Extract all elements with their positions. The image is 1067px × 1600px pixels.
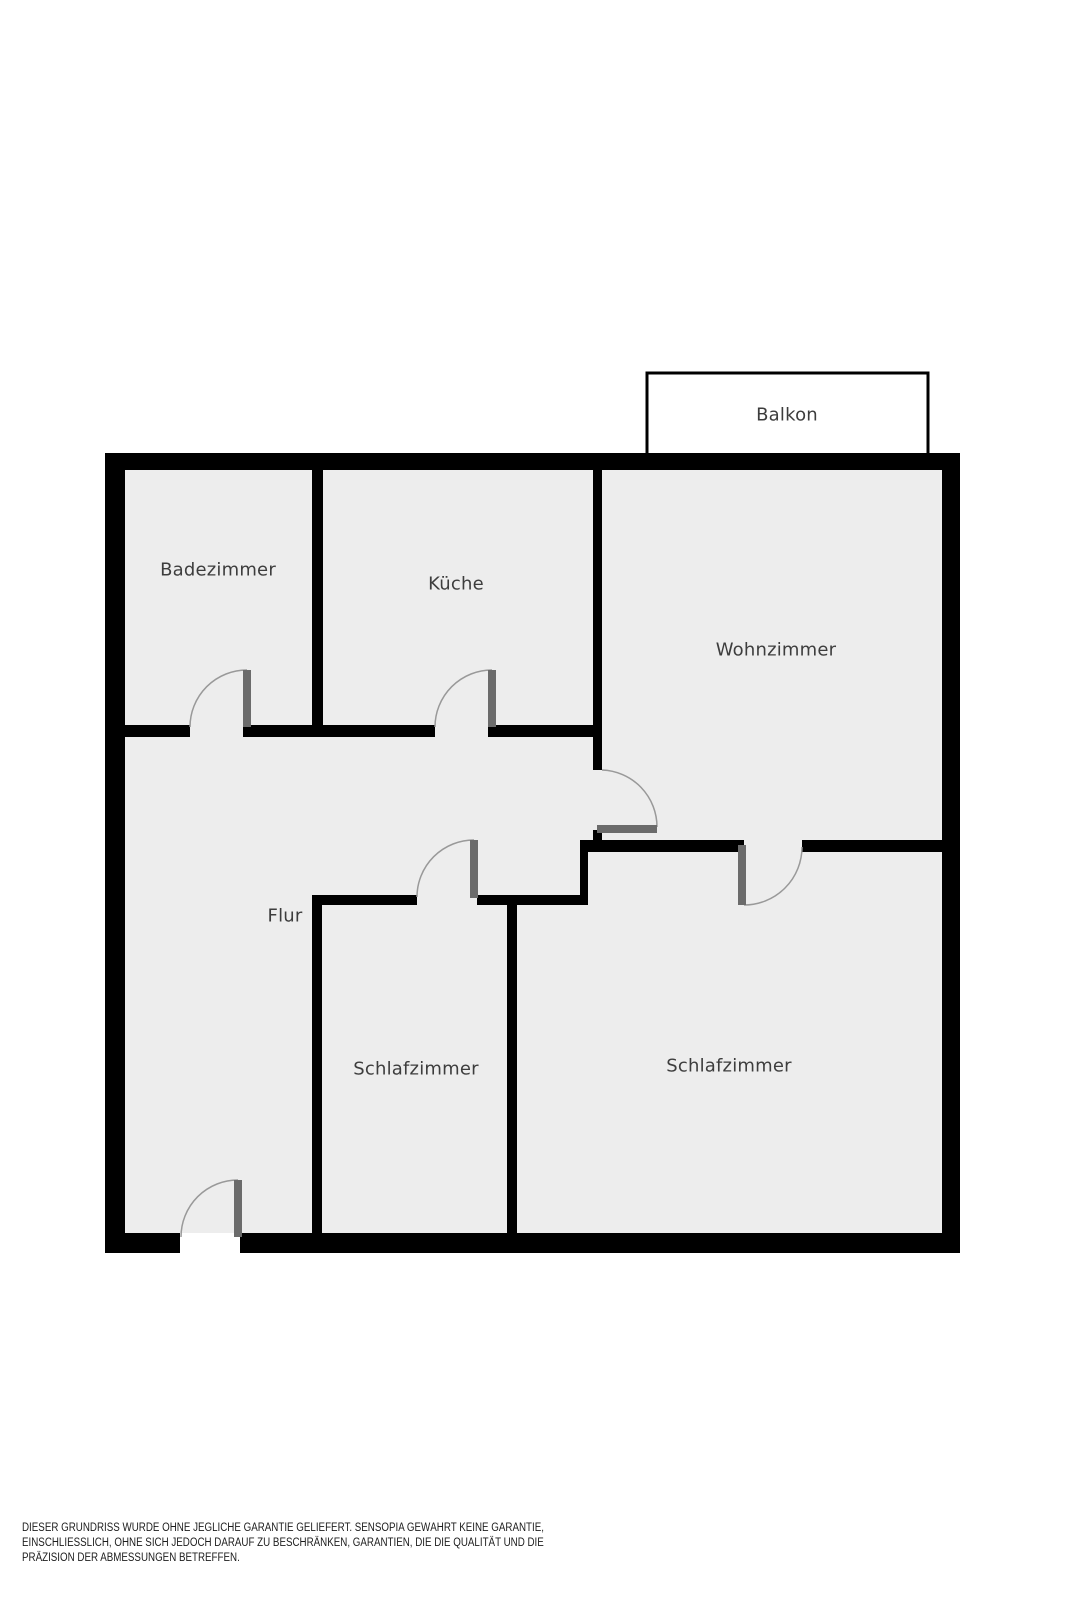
wall-schlafzimmer-divider [507,895,517,1233]
door-wohnzimmer-panel [597,825,657,833]
wall-wohnzimmer-south-seg2 [802,840,942,852]
floor-plan-drawing [0,0,1067,1600]
wall-bad-kueche-divider [312,470,323,737]
room-label-flur: Flur [268,906,303,927]
room-label-balkon: Balkon [756,405,818,426]
disclaimer-line-2: EINSCHLIESSLICH, OHNE SICH JEDOCH DARAUF… [22,1536,544,1551]
disclaimer: DIESER GRUNDRISS WURDE OHNE JEGLICHE GAR… [22,1521,544,1566]
door-kueche-panel [488,670,496,727]
wall-flur-schlafzimmer-divider [312,895,322,1233]
wall-flur-north-seg2 [243,725,435,737]
floor-plan-page: Balkon Badezimmer Küche Wohnzimmer Flur … [0,0,1067,1600]
wall-schlafzimmer-links-north-seg2 [477,895,588,905]
disclaimer-line-3: PRÄZISION DER ABMESSUNGEN BETREFFEN. [22,1551,544,1566]
room-label-schlafzimmer-rechts: Schlafzimmer [666,1056,792,1077]
disclaimer-line-1: DIESER GRUNDRISS WURDE OHNE JEGLICHE GAR… [22,1521,544,1536]
door-badezimmer-panel [243,670,251,727]
wall-flur-north-seg1 [125,725,190,737]
room-label-badezimmer: Badezimmer [160,560,276,581]
door-schlafzimmer-links-panel [470,840,478,898]
wall-kueche-wohnzimmer-divider [593,470,602,770]
wall-bottom-main-segment [240,1233,960,1253]
wall-bottom-left-segment [105,1233,180,1253]
room-label-kueche: Küche [428,574,484,595]
room-label-schlafzimmer-links: Schlafzimmer [353,1059,479,1080]
wall-wohnzimmer-south-seg1 [580,840,744,852]
wall-top [105,453,960,470]
wall-schlafzimmer-links-north-seg1 [312,895,417,905]
door-schlafzimmer-rechts-panel [738,845,746,905]
wall-right [942,453,960,1253]
room-label-wohnzimmer: Wohnzimmer [716,640,837,661]
door-entrance-panel [234,1180,242,1237]
wall-flur-north-seg3 [488,725,593,737]
wall-left [105,453,125,1253]
